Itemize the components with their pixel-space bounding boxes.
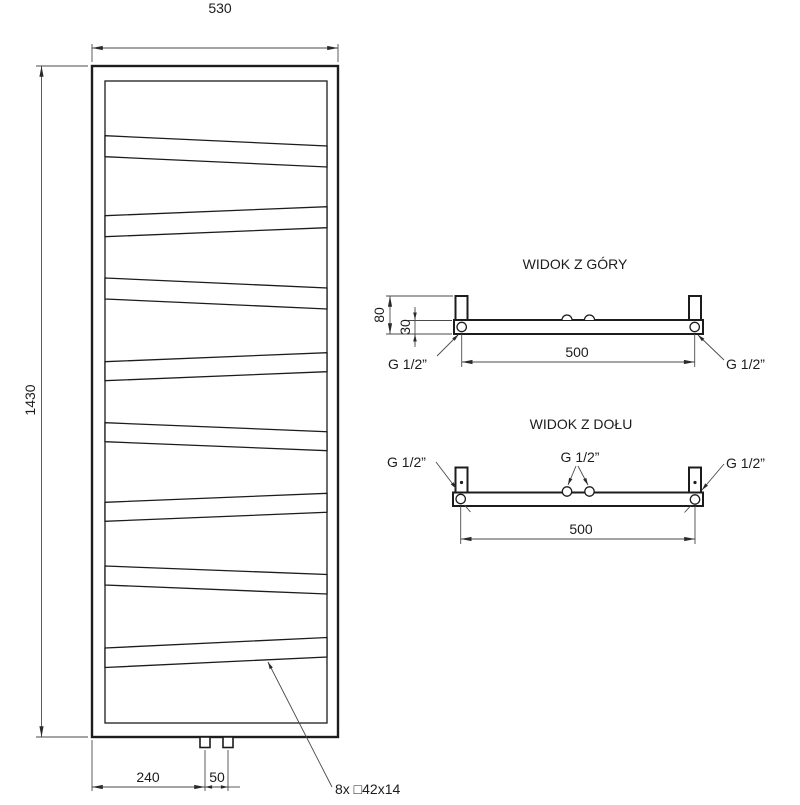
top-right-connection-label: G 1/2” — [726, 356, 765, 372]
tube-3 — [105, 278, 327, 309]
bottom-left-connection-label: G 1/2” — [387, 454, 426, 470]
tube-4 — [105, 353, 327, 381]
top-left-connection-label: G 1/2” — [388, 356, 427, 372]
bottom-view: WIDOK Z DOŁU G 1/2” G 1/2” G 1/2” — [387, 416, 765, 544]
right-bracket-hole — [693, 481, 696, 484]
bottom-view-left-connection — [456, 494, 465, 503]
dim-text-30: 30 — [397, 319, 413, 335]
tube-2 — [105, 207, 327, 237]
dim-stub-position: 240 50 — [92, 740, 240, 791]
profile-note-text: 8x □42x14 — [335, 781, 400, 797]
top-view-bump-left — [562, 315, 572, 320]
dim-top-500: 500 — [462, 334, 695, 367]
drawing-svg: 530 1430 240 50 8x □42x14 WIDOK Z GÓRY — [0, 0, 800, 800]
radiator-technical-drawing: 530 1430 240 50 8x □42x14 WIDOK Z GÓRY — [0, 0, 800, 800]
dim-bottom-500: 500 — [461, 506, 695, 544]
tube-5 — [105, 423, 327, 451]
tube-7 — [105, 566, 327, 594]
dim-text-top-500: 500 — [565, 344, 589, 360]
top-view-left-connection — [457, 322, 466, 331]
bottom-center-connection-label-group: G 1/2” — [561, 449, 600, 485]
tube-8 — [105, 638, 327, 668]
radiator-outer-frame — [92, 66, 338, 737]
dim-text-240: 240 — [136, 769, 160, 785]
bottom-view-center-connection-right — [585, 487, 594, 496]
top-view-left-bracket — [456, 296, 468, 321]
tube-1 — [105, 136, 327, 167]
dim-text-bottom-500: 500 — [569, 521, 593, 537]
bottom-view-right-connection — [690, 495, 699, 504]
top-view-title: WIDOK Z GÓRY — [523, 256, 628, 272]
front-view: 530 1430 240 50 8x □42x14 — [22, 0, 400, 797]
radiator-inner-frame — [105, 81, 327, 723]
radiator-tubes — [105, 136, 327, 668]
dim-text-80: 80 — [371, 307, 387, 323]
bottom-view-collector-bar — [453, 493, 703, 507]
left-bracket-hole — [460, 481, 463, 484]
dim-width-530: 530 — [92, 0, 338, 62]
dim-height-1430: 1430 — [22, 66, 88, 737]
top-view-right-bracket — [689, 296, 701, 321]
top-view-collector-bar — [454, 320, 703, 334]
profile-note: 8x □42x14 — [268, 662, 400, 797]
bottom-center-connection-label: G 1/2” — [561, 449, 600, 465]
dim-text-1430: 1430 — [22, 384, 38, 415]
tube-6 — [105, 493, 327, 521]
dim-collector-30: 30 — [397, 307, 452, 347]
dim-text-50: 50 — [209, 769, 225, 785]
bottom-stub-right — [223, 737, 233, 748]
top-view: WIDOK Z GÓRY 80 30 — [371, 256, 765, 372]
dim-text-530: 530 — [208, 0, 232, 16]
bottom-right-connection-label: G 1/2” — [726, 455, 765, 471]
top-view-bump-right — [585, 315, 595, 320]
bottom-view-title: WIDOK Z DOŁU — [530, 416, 633, 432]
bottom-view-right-bracket — [689, 468, 701, 494]
bottom-stub-left — [200, 737, 210, 748]
bottom-view-center-connection-left — [562, 487, 571, 496]
bottom-view-left-bracket — [456, 468, 468, 494]
top-view-right-connection — [690, 322, 699, 331]
